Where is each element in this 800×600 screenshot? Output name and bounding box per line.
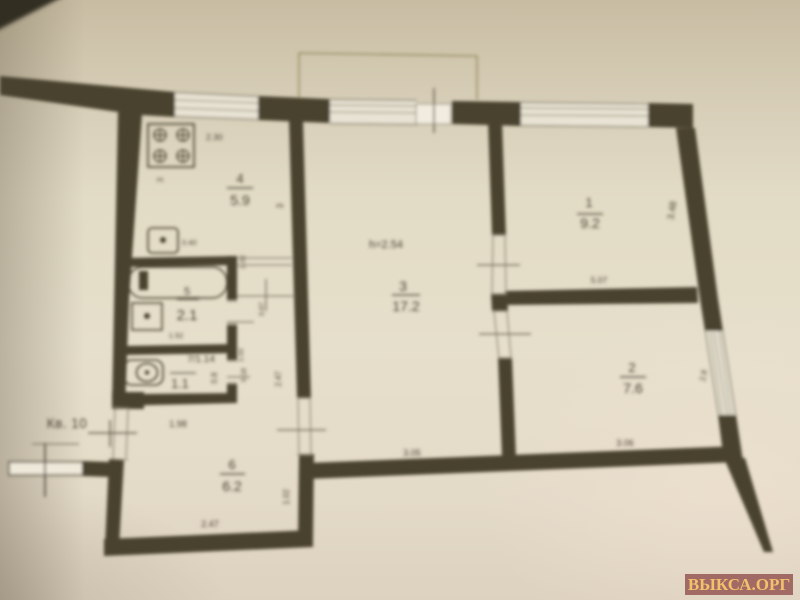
- svg-text:1: 1: [585, 195, 592, 210]
- svg-text:7/1.14: 7/1.14: [187, 354, 215, 365]
- svg-text:5: 5: [184, 286, 190, 298]
- svg-text:0.40: 0.40: [182, 238, 197, 247]
- svg-text:1.98: 1.98: [169, 419, 187, 429]
- svg-text:3: 3: [156, 177, 165, 182]
- svg-text:1.02: 1.02: [240, 255, 247, 269]
- svg-text:3.05: 3.05: [403, 448, 421, 458]
- svg-text:1.52: 1.52: [169, 331, 184, 340]
- svg-text:3.06: 3.06: [616, 438, 634, 448]
- svg-text:h=2.54: h=2.54: [369, 239, 403, 251]
- svg-text:5.07: 5.07: [591, 275, 608, 285]
- svg-text:2: 2: [628, 360, 635, 375]
- svg-text:0.67: 0.67: [259, 302, 266, 316]
- svg-text:2.1: 2.1: [177, 307, 198, 324]
- svg-text:1.02: 1.02: [238, 348, 245, 362]
- svg-text:2.47: 2.47: [274, 371, 283, 387]
- svg-text:3: 3: [399, 278, 407, 294]
- svg-text:17.2: 17.2: [392, 298, 419, 314]
- svg-text:0.8: 0.8: [210, 372, 219, 384]
- svg-text:6: 6: [228, 457, 235, 472]
- svg-text:7.6: 7.6: [623, 380, 643, 396]
- svg-text:ВЫКСА.ОРГ: ВЫКСА.ОРГ: [688, 575, 790, 594]
- svg-text:1.02: 1.02: [282, 489, 291, 505]
- svg-text:2.30: 2.30: [206, 132, 223, 142]
- svg-text:9.2: 9.2: [580, 215, 600, 231]
- svg-text:Кв. 10: Кв. 10: [47, 416, 88, 431]
- svg-text:6.2: 6.2: [222, 478, 242, 494]
- svg-text:5.9: 5.9: [230, 192, 250, 208]
- svg-text:1.1: 1.1: [171, 377, 188, 391]
- svg-text:0.18: 0.18: [241, 368, 248, 382]
- svg-text:4: 4: [236, 171, 243, 186]
- svg-text:3: 3: [275, 203, 285, 208]
- svg-text:2.47: 2.47: [201, 519, 219, 529]
